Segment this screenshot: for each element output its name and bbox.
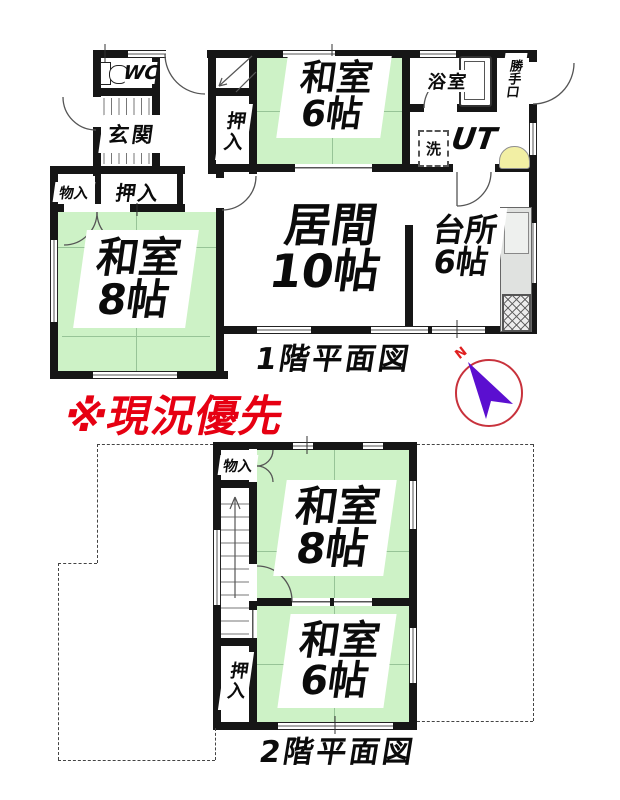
door-opening	[93, 97, 101, 127]
window	[432, 326, 485, 334]
stair-closet-label: 押入	[215, 104, 253, 160]
door-opening	[529, 62, 537, 104]
fusuma-opening	[292, 598, 330, 606]
window	[363, 442, 383, 450]
window	[128, 50, 166, 58]
door-opening	[165, 50, 207, 58]
laundry-label: 洗	[426, 138, 441, 159]
window	[293, 442, 313, 450]
roof-outline	[58, 563, 97, 564]
stove-icon	[502, 294, 531, 332]
washitsu8-1f-label: 和室 8帖	[73, 230, 199, 328]
kitchen-label: 台所 6帖	[419, 208, 508, 284]
roof-outline	[97, 444, 98, 563]
window	[371, 326, 428, 334]
floor2-caption: 2階平面図	[257, 727, 420, 771]
window	[409, 628, 417, 683]
roof-outline	[417, 444, 533, 445]
washbasin-icon	[499, 146, 530, 169]
window	[529, 123, 537, 155]
genkan-label: 玄関	[98, 115, 165, 153]
living-label: 居間 10帖	[255, 196, 402, 300]
monoire-2f-label: 物入	[218, 455, 259, 475]
stairs-up-arrow	[230, 497, 240, 598]
utility-label: UT	[449, 120, 498, 158]
door-opening	[216, 178, 224, 208]
window	[420, 50, 456, 58]
wall	[93, 88, 160, 96]
window	[50, 240, 58, 322]
kitchen-sink	[504, 212, 529, 254]
window	[409, 481, 417, 529]
fusuma-opening	[334, 598, 372, 606]
compass-icon	[456, 360, 522, 426]
floor1-caption: 1階平面図	[253, 334, 416, 378]
backdoor-label: 勝手口	[498, 53, 527, 103]
wall	[50, 166, 185, 174]
window	[93, 371, 177, 379]
roof-outline	[58, 760, 215, 761]
wall	[405, 225, 413, 332]
roof-outline	[58, 563, 59, 760]
bath-label: 浴室	[420, 70, 475, 92]
roof-outline	[533, 444, 534, 721]
washer-space: 洗	[418, 130, 449, 167]
fusuma-opening	[295, 164, 372, 172]
door-opening	[453, 164, 495, 172]
washitsu6-1f-label: 和室 6帖	[276, 56, 392, 138]
remark-note: ※現況優先	[59, 382, 291, 444]
oshiire-1f-label: 押入	[107, 179, 168, 203]
door-opening	[424, 104, 457, 112]
window	[213, 530, 221, 605]
compass-north-label: N	[453, 344, 471, 363]
monoire-1f-label: 物入	[53, 182, 96, 202]
window	[257, 326, 311, 334]
fusuma-opening	[249, 610, 257, 638]
roof-outline	[97, 444, 213, 445]
wall	[213, 638, 257, 646]
washitsu8-2f-label: 和室 8帖	[273, 480, 396, 576]
roof-outline	[215, 728, 216, 760]
washitsu6-2f-label: 和室 6帖	[277, 614, 396, 708]
wall	[208, 88, 257, 96]
door-opening	[249, 564, 257, 601]
wc-label: WC	[124, 62, 157, 84]
roof-outline	[417, 721, 533, 722]
floor-plan: 洗	[0, 0, 620, 800]
